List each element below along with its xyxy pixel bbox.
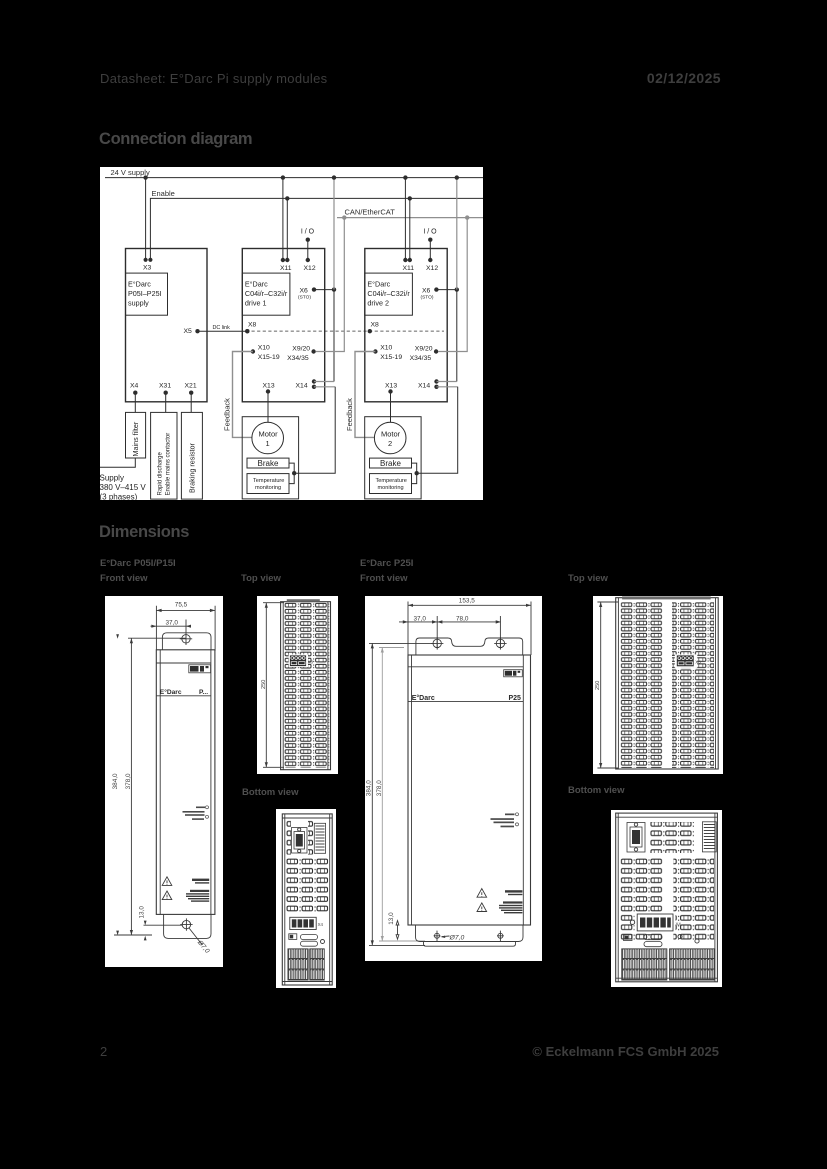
svg-text:X9/20: X9/20 — [415, 346, 433, 353]
svg-text:78,0: 78,0 — [456, 615, 469, 622]
svg-text:X10: X10 — [258, 345, 270, 352]
svg-text:E°Darc: E°Darc — [128, 280, 151, 289]
svg-text:X11: X11 — [280, 265, 292, 272]
svg-text:E°Darc: E°Darc — [367, 280, 390, 289]
svg-text:Enable: Enable — [152, 189, 175, 198]
svg-text:X5: X5 — [184, 328, 193, 335]
svg-text:CAN/EtherCAT: CAN/EtherCAT — [345, 208, 396, 217]
svg-text:C04i/r–C32i/r: C04i/r–C32i/r — [367, 289, 410, 298]
svg-text:(STO): (STO) — [421, 295, 434, 301]
svg-text:Motor: Motor — [259, 430, 279, 439]
svg-text:X8: X8 — [371, 322, 380, 329]
svg-text:I / O: I / O — [423, 229, 437, 236]
svg-text:X6: X6 — [422, 288, 431, 295]
svg-text:X8: X8 — [695, 660, 701, 665]
svg-text:X14: X14 — [296, 382, 308, 389]
svg-text:DC link: DC link — [213, 325, 231, 331]
svg-text:I / O: I / O — [301, 229, 315, 236]
svg-text:Brake: Brake — [380, 459, 401, 468]
svg-text:250: 250 — [595, 681, 601, 690]
svg-text:384,0: 384,0 — [365, 780, 372, 796]
svg-text:75,5: 75,5 — [175, 602, 188, 609]
svg-text:E°Darc: E°Darc — [245, 280, 268, 289]
svg-text:X31: X31 — [159, 382, 171, 389]
svg-text:C04i/r–C32i/r: C04i/r–C32i/r — [245, 289, 288, 298]
svg-text:Temperature: Temperature — [253, 478, 284, 484]
svg-text:E°Darc: E°Darc — [160, 688, 182, 696]
svg-text:P...: P... — [199, 689, 208, 696]
svg-text:Feedback: Feedback — [345, 398, 354, 431]
svg-text:X21: X21 — [185, 382, 197, 389]
svg-text:13,0: 13,0 — [139, 906, 146, 919]
svg-text:X4: X4 — [130, 382, 139, 389]
svg-text:X34/35: X34/35 — [287, 355, 309, 362]
svg-text:Braking resistor: Braking resistor — [188, 442, 197, 493]
svg-text:2: 2 — [388, 439, 392, 448]
svg-text:Ø7,0: Ø7,0 — [449, 935, 465, 942]
svg-text:Brake: Brake — [258, 459, 279, 468]
svg-text:X34/35: X34/35 — [410, 355, 432, 362]
svg-text:384,0: 384,0 — [112, 773, 119, 789]
svg-text:supply: supply — [128, 299, 149, 308]
svg-text:X12: X12 — [304, 265, 316, 272]
svg-text:X12: X12 — [426, 265, 438, 272]
svg-text:X3: X3 — [143, 265, 152, 272]
svg-text:250: 250 — [261, 680, 267, 689]
svg-text:(3 phases): (3 phases) — [100, 493, 138, 501]
svg-text:drive 1: drive 1 — [245, 299, 267, 308]
svg-text:37,0: 37,0 — [166, 619, 179, 626]
svg-text:X9/20: X9/20 — [292, 346, 310, 353]
svg-text:1: 1 — [266, 439, 270, 448]
svg-text:24 V supply: 24 V supply — [111, 168, 150, 177]
svg-text:X10: X10 — [380, 345, 392, 352]
svg-text:378,0: 378,0 — [125, 773, 132, 789]
svg-text:Mains filter: Mains filter — [131, 421, 140, 456]
svg-text:Feedback: Feedback — [223, 398, 232, 431]
svg-text:153,5: 153,5 — [459, 598, 475, 605]
svg-text:X4: X4 — [676, 922, 682, 927]
svg-text:378,0: 378,0 — [376, 780, 383, 796]
svg-text:X8: X8 — [248, 322, 257, 329]
svg-text:drive 2: drive 2 — [367, 299, 389, 308]
svg-text:(STO): (STO) — [298, 295, 311, 301]
svg-text:Enable mains contactor: Enable mains contactor — [166, 433, 172, 496]
svg-text:Temperature: Temperature — [376, 478, 407, 484]
svg-text:P25: P25 — [509, 695, 522, 702]
svg-text:X14: X14 — [418, 382, 430, 389]
svg-text:37,0: 37,0 — [414, 615, 427, 622]
svg-text:X13: X13 — [263, 382, 275, 389]
svg-text:X11: X11 — [403, 265, 415, 272]
svg-text:E°Darc: E°Darc — [412, 694, 435, 702]
svg-text:Supply: Supply — [100, 474, 124, 483]
svg-text:Motor: Motor — [381, 430, 401, 439]
svg-text:X8: X8 — [308, 660, 314, 665]
svg-text:X4: X4 — [318, 922, 324, 927]
svg-text:monitoring: monitoring — [255, 485, 281, 491]
svg-text:X6: X6 — [300, 288, 309, 295]
svg-text:13,0: 13,0 — [388, 912, 395, 925]
svg-text:X15-19: X15-19 — [380, 354, 402, 361]
svg-text:monitoring: monitoring — [378, 485, 404, 491]
svg-text:380 V–415 V: 380 V–415 V — [100, 483, 146, 492]
svg-text:Rapid discharge: Rapid discharge — [158, 451, 164, 495]
svg-text:X15-19: X15-19 — [258, 354, 280, 361]
svg-text:X13: X13 — [385, 382, 397, 389]
svg-text:P05I–P25I: P05I–P25I — [128, 289, 162, 298]
